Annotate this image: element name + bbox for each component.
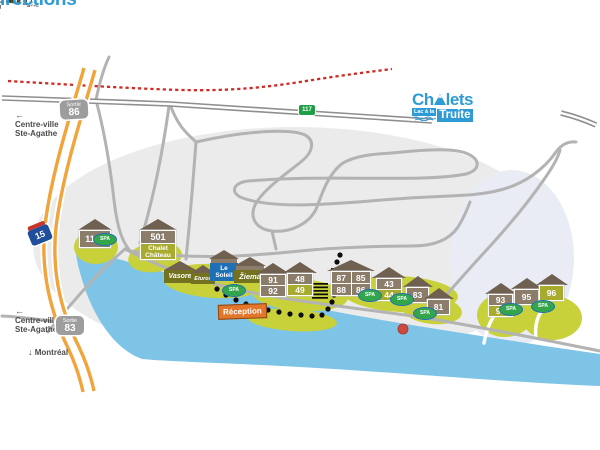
- left-arrow-icon: ←: [15, 111, 59, 120]
- trail-dot: [287, 311, 292, 316]
- direction-text: Ste-Agathe: [15, 129, 59, 138]
- direction-montreal: ↓ Montréal: [28, 348, 68, 357]
- exit-86-badge: Sortie 86: [60, 99, 89, 119]
- stair-step: [312, 297, 328, 299]
- direction-text: Centre-ville: [15, 120, 59, 129]
- trail-dot: [298, 312, 303, 317]
- chalet-unit-48: 48: [288, 274, 312, 284]
- spa-marker: SPA: [531, 300, 555, 313]
- chalet-roof: [78, 219, 112, 230]
- direction-text: Ste-Agathe: [15, 325, 59, 334]
- page-title: Plan et directions: [0, 0, 76, 11]
- chalet-unit-87: 87: [332, 272, 351, 283]
- chalet-roof: [536, 274, 568, 285]
- spa-marker: SPA: [222, 284, 246, 297]
- logo-text-suffix: lets: [446, 92, 473, 107]
- chalet-name-line: Soleil: [215, 272, 232, 279]
- chalet-unit-92: 92: [261, 286, 285, 296]
- road-tremblant: [96, 57, 109, 100]
- trail-dot: [214, 286, 219, 291]
- trail-dot: [233, 297, 238, 302]
- point-marker: [398, 324, 408, 334]
- chalet-roof: [327, 260, 375, 271]
- exit-number: 83: [56, 324, 84, 333]
- mountain-icon: [433, 92, 447, 106]
- chalet-roof: [372, 267, 406, 278]
- chalet-unit-88: 88: [332, 284, 351, 295]
- chalet-unit-43: 43: [377, 279, 401, 289]
- chalet-body: 96: [539, 285, 564, 301]
- down-arrow-icon: ↓: [28, 347, 33, 357]
- logo-text-prefix: Ch: [412, 92, 434, 107]
- chalet-48-49: 4849: [283, 262, 317, 296]
- exit-83-badge: Sortie 83: [56, 316, 84, 335]
- brand-logo: Ch lets Lac à la Truite: [412, 92, 510, 123]
- parc-lineaire-trail: [8, 69, 392, 90]
- logo-truite-box: Truite: [436, 108, 473, 123]
- direction-centre-ville-bottom: ← Centre-ville Ste-Agathe: [15, 307, 59, 334]
- chalet-96: 96: [535, 274, 568, 301]
- spa-marker: SPA: [499, 303, 523, 316]
- trail-dot: [276, 309, 281, 314]
- reception-badge: Réception: [218, 303, 267, 320]
- direction-text: Centre-ville: [15, 316, 59, 325]
- chalet-roof: [283, 262, 317, 273]
- logo-lac-box: Lac à la: [412, 108, 436, 116]
- logo-subline: Lac à la Truite: [412, 108, 510, 123]
- chalet-name-line: Château: [145, 252, 171, 259]
- spa-marker: SPA: [413, 307, 437, 320]
- spa-marker: SPA: [390, 293, 414, 306]
- spa-marker: SPA: [93, 233, 117, 246]
- chalet-roof: [403, 276, 433, 287]
- exit-number: 86: [60, 107, 88, 117]
- trail-dot: [325, 306, 330, 311]
- chalet-body: 4849: [287, 273, 313, 296]
- left-arrow-icon: ←: [15, 307, 59, 316]
- chalet-name: Chalet Château: [141, 244, 175, 259]
- chalet-name-line: Chalet: [148, 245, 168, 252]
- route-117-shield: 117: [299, 105, 315, 115]
- map-page: Plan et directions Ch lets Lac à la Trui…: [0, 0, 600, 450]
- chalet-501: 501 Chalet Château: [139, 219, 177, 260]
- chalet-unit-91: 91: [261, 275, 285, 285]
- direction-text: Montréal: [35, 348, 68, 357]
- chalet-unit-85: 85: [352, 272, 371, 283]
- spa-marker: SPA: [358, 289, 382, 302]
- trail-dot: [337, 252, 342, 257]
- chalet-number: 501: [141, 231, 175, 243]
- road-edelweiss-top: [170, 104, 196, 142]
- chalet-roof: [139, 219, 177, 230]
- chalet-name-line: Le: [220, 265, 228, 272]
- chalet-roof: [424, 288, 454, 299]
- trail-dot: [309, 313, 314, 318]
- logo-wordmark: Ch lets: [412, 92, 510, 107]
- trail-dot: [319, 312, 324, 317]
- chalet-unit-49: 49: [288, 285, 312, 295]
- direction-centre-ville-top: ← Centre-ville Ste-Agathe: [15, 111, 59, 138]
- chalet-unit-96: 96: [540, 286, 563, 300]
- waves-icon: [412, 116, 436, 121]
- trail-dot: [329, 299, 334, 304]
